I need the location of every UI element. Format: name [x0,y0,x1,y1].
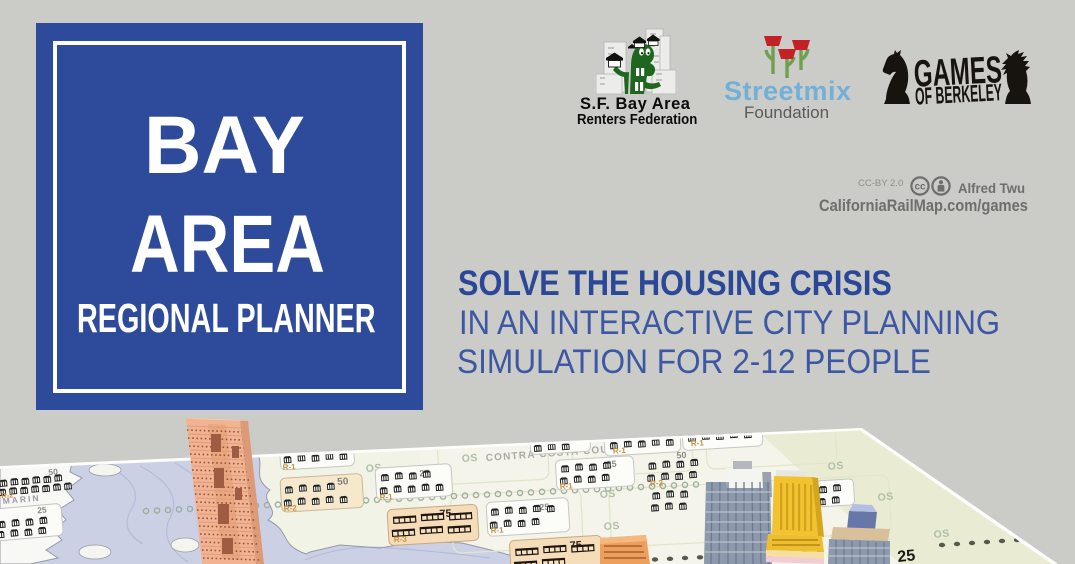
svg-text:OS: OS [827,460,844,473]
svg-text:R-2: R-2 [650,478,664,488]
svg-text:R-1: R-1 [379,492,393,502]
svg-text:25: 25 [897,547,917,564]
svg-text:R-1: R-1 [560,481,574,491]
svg-text:OS: OS [461,452,478,465]
svg-text:R-1: R-1 [490,525,504,535]
svg-text:R-1: R-1 [691,438,705,448]
svg-text:OS: OS [426,423,443,436]
svg-text:OS: OS [877,490,894,504]
svg-text:OF BERKELEY: OF BERKELEY [914,79,1002,107]
svg-text:25: 25 [329,439,340,450]
svg-text:OS: OS [984,432,1001,446]
svg-text:50: 50 [337,476,349,488]
svg-text:R-3: R-3 [394,535,408,545]
svg-text:R-1: R-1 [613,446,627,456]
svg-text:25: 25 [567,427,578,438]
svg-text:OS: OS [599,488,616,501]
svg-text:50: 50 [48,466,59,477]
svg-text:25: 25 [654,419,665,430]
svg-text:cc: cc [914,182,926,193]
svg-text:R-1: R-1 [282,462,296,472]
svg-text:25: 25 [37,505,48,516]
svg-text:25: 25 [731,407,742,418]
svg-text:50: 50 [676,450,687,461]
svg-text:R-2: R-2 [1,490,14,500]
svg-text:OS: OS [933,527,950,541]
svg-text:OS: OS [603,520,620,533]
svg-text:R-2: R-2 [283,503,297,513]
